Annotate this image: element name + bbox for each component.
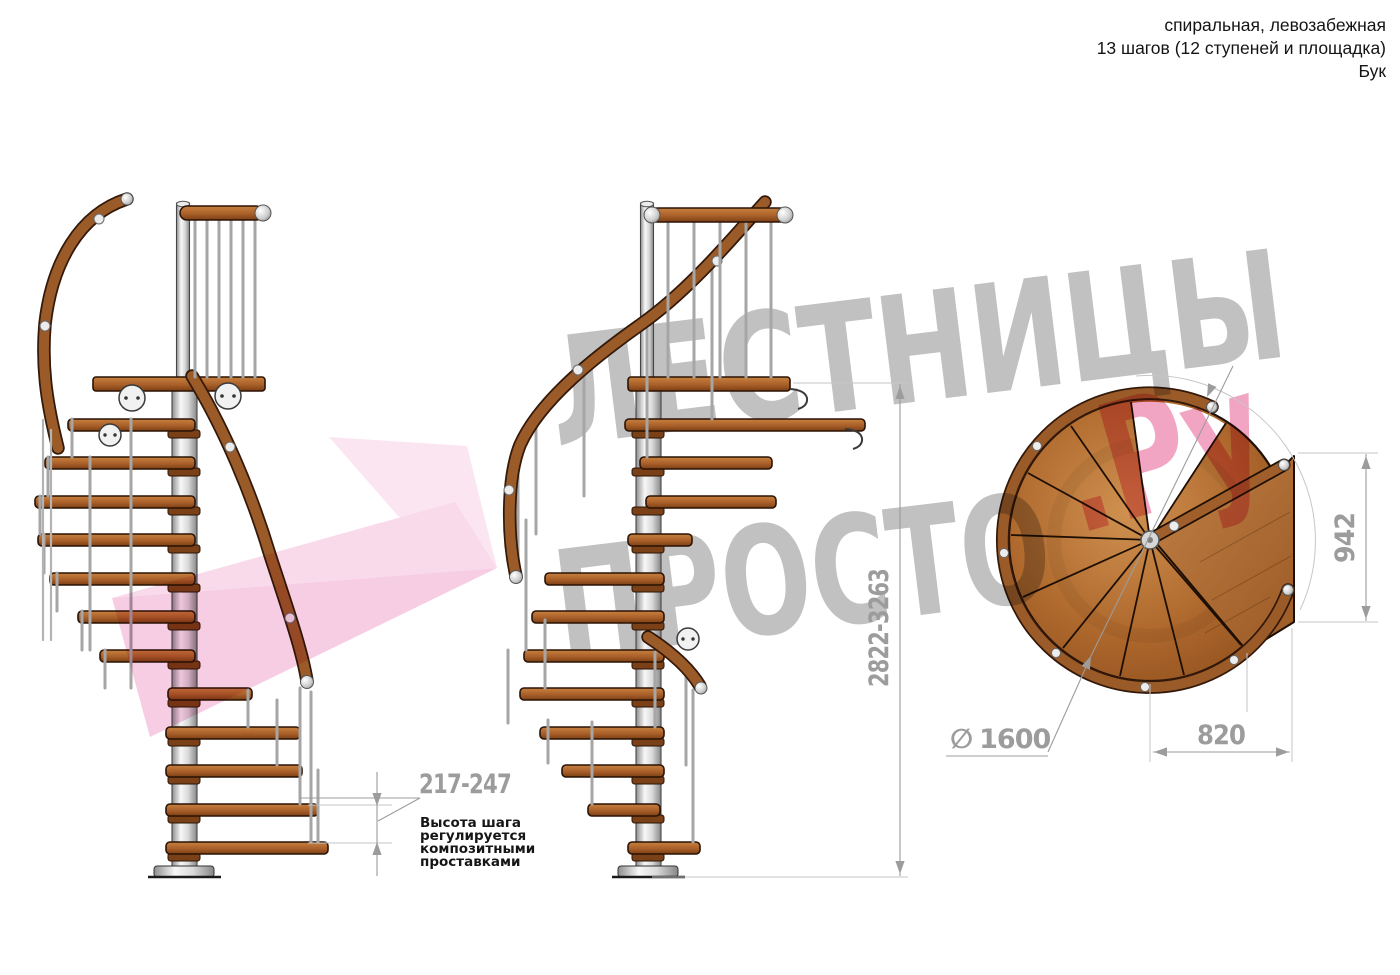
handrail-curve-outer <box>40 193 133 448</box>
mount-plate <box>99 424 121 446</box>
tread <box>640 457 772 469</box>
mount-plate <box>119 385 145 411</box>
diameter-value: 1600 <box>979 724 1050 755</box>
tread <box>166 842 328 854</box>
tread <box>562 765 664 777</box>
tread <box>628 842 700 854</box>
drawing-canvas: спиральная, левозабежная 13 шагов (12 ст… <box>0 0 1400 975</box>
tread <box>588 804 660 816</box>
total-height-value: 2822-3263 <box>864 569 895 687</box>
tread <box>38 534 195 546</box>
step-note-4: проставками <box>420 854 521 870</box>
top-balustrade <box>180 205 271 377</box>
pole-cap <box>641 201 654 207</box>
center-pole-upper <box>177 203 190 385</box>
tread <box>520 688 664 700</box>
tread <box>625 419 865 431</box>
tread <box>35 496 195 508</box>
side-view-front <box>35 193 328 877</box>
tread <box>540 727 664 739</box>
mount-plate <box>677 628 699 650</box>
tread <box>166 804 318 816</box>
tread <box>545 573 664 585</box>
landing-depth-value: 942 <box>1330 513 1361 563</box>
logo-watermark <box>112 437 497 737</box>
platform-board <box>628 377 790 391</box>
tread <box>45 457 195 469</box>
dim-landing-depth: 942 <box>1330 454 1371 621</box>
base-flange <box>154 866 214 877</box>
step-height-value: 217-247 <box>419 769 511 800</box>
dim-landing-width: 820 <box>1153 720 1290 757</box>
balustrade-handrail <box>180 206 263 220</box>
base-flange <box>618 866 678 877</box>
staircase-drawing: ЛЕСТНИЦЫ ПРОСТО .Ру <box>0 0 1400 975</box>
tread <box>166 727 300 739</box>
dim-step-height: 217-247 Высота шага регулируется компози… <box>300 769 535 876</box>
tread <box>628 534 692 546</box>
mount-plate <box>215 383 241 409</box>
diameter-symbol: ∅ <box>950 724 972 755</box>
tread <box>646 496 776 508</box>
tread <box>166 765 302 777</box>
rail-end-cap <box>1283 585 1294 596</box>
balustrade-handrail <box>650 208 787 222</box>
tread <box>532 611 664 623</box>
landing-width-value: 820 <box>1197 720 1245 751</box>
diameter-label: ∅1600 <box>950 724 1050 755</box>
